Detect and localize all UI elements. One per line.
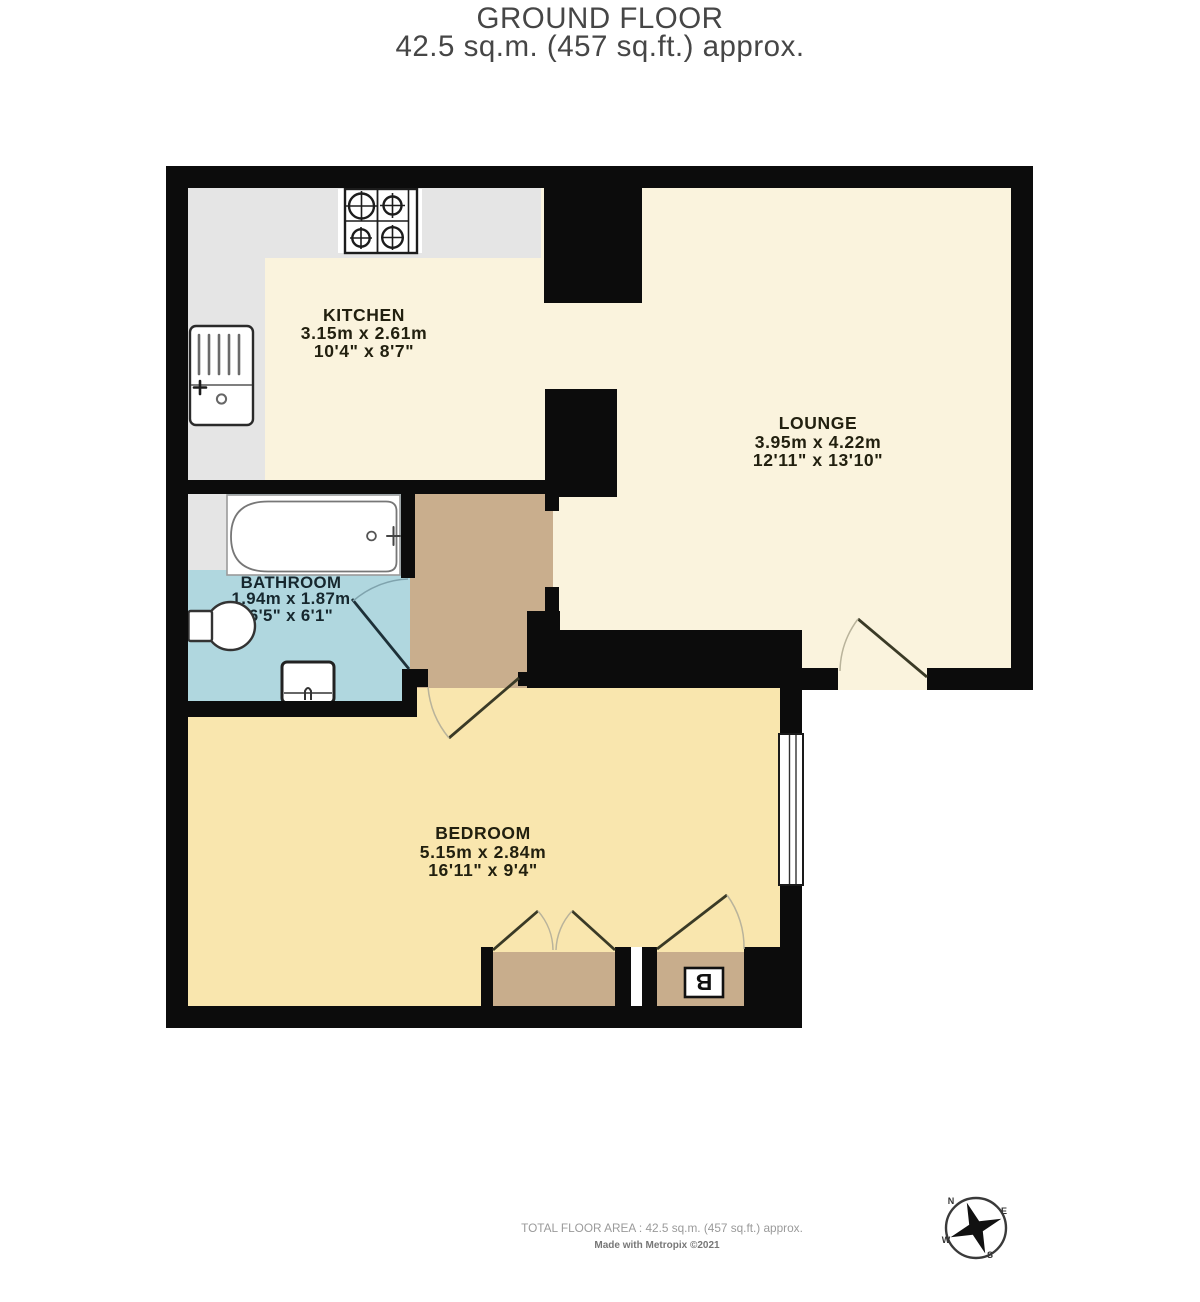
svg-text:S: S [987, 1250, 993, 1260]
svg-text:Made with Metropix ©2021: Made with Metropix ©2021 [594, 1240, 720, 1251]
svg-text:5.15m x 2.84m: 5.15m x 2.84m [420, 842, 547, 862]
svg-text:10'4" x 8'7": 10'4" x 8'7" [314, 341, 414, 361]
svg-text:BEDROOM: BEDROOM [435, 823, 531, 843]
svg-text:TOTAL FLOOR AREA : 42.5 sq.m.: TOTAL FLOOR AREA : 42.5 sq.m. (457 sq.ft… [521, 1221, 803, 1235]
svg-text:12'11" x 13'10": 12'11" x 13'10" [753, 450, 883, 470]
svg-text:B: B [696, 969, 713, 995]
svg-text:6'5" x 6'1": 6'5" x 6'1" [249, 606, 333, 625]
svg-text:16'11" x 9'4": 16'11" x 9'4" [428, 860, 538, 880]
svg-text:3.95m x 4.22m: 3.95m x 4.22m [755, 432, 882, 452]
svg-text:W: W [942, 1235, 951, 1245]
svg-text:42.5 sq.m. (457 sq.ft.) approx: 42.5 sq.m. (457 sq.ft.) approx. [395, 30, 804, 63]
svg-text:E: E [1001, 1206, 1007, 1216]
svg-text:LOUNGE: LOUNGE [779, 413, 857, 433]
svg-text:KITCHEN: KITCHEN [323, 305, 405, 325]
svg-text:3.15m x 2.61m: 3.15m x 2.61m [301, 323, 428, 343]
svg-text:N: N [948, 1196, 955, 1206]
